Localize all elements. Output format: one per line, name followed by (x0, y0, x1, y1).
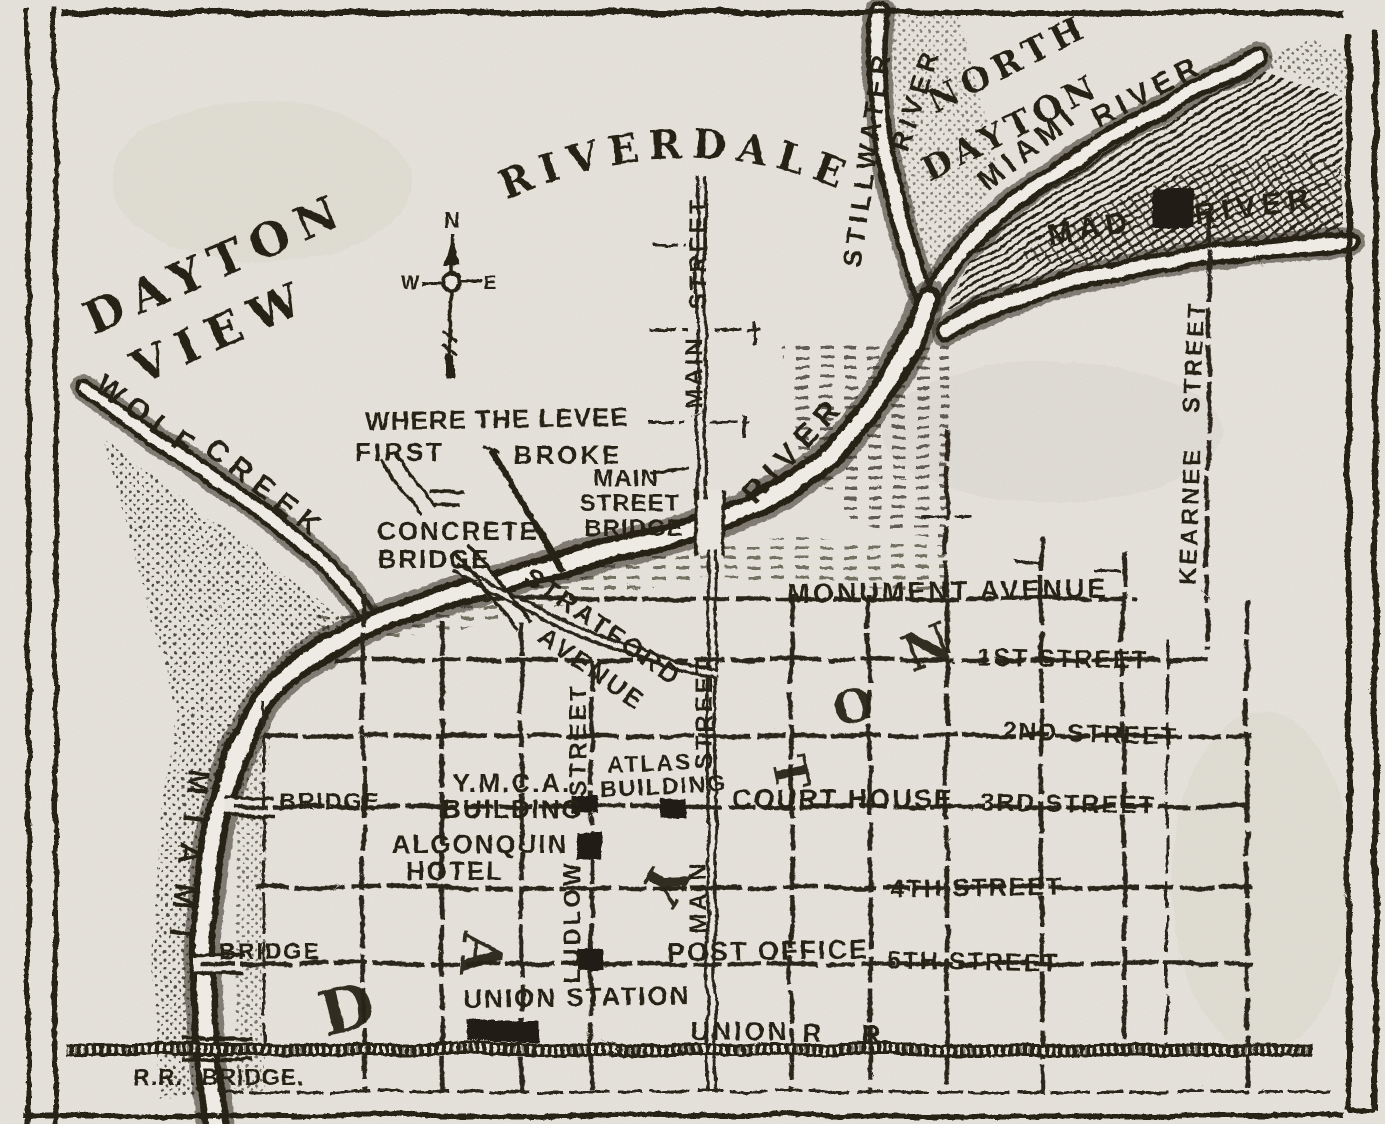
street-main-n-2: MAIN (681, 335, 708, 408)
note-concrete-1: CONCRETE (377, 516, 539, 546)
compass-west-label: W (401, 273, 419, 294)
compass-north-label: N (444, 208, 460, 233)
dayton-flood-map-svg: N W E DAYTONVIEWRIVERDALENORTHDAYTONSTIL… (0, 0, 1385, 1124)
street-kearnee-2: KEARNEE (1175, 446, 1207, 585)
note-main-bridge-2: STREET (580, 490, 681, 517)
street-3rd: 3RD STREET (980, 788, 1156, 819)
note-bridge-5th: BRIDGE (219, 938, 320, 964)
street-main-n-1: STREET (685, 197, 712, 310)
compass-east-label: E (484, 273, 497, 294)
newspaper-map-page: N W E DAYTONVIEWRIVERDALENORTHDAYTONSTIL… (0, 0, 1385, 1124)
street-union-rr-2: R (803, 1018, 822, 1048)
place-algonquin-1: ALGONQUIN (392, 829, 569, 859)
note-bridge-3rd: BRIDGE (279, 788, 380, 814)
note-levee-1: WHERE THE LEVEE (365, 402, 629, 437)
algonquin-hotel-mark (574, 830, 600, 857)
street-4th: 4TH STREET (890, 872, 1063, 903)
union-station-mark (467, 1020, 537, 1041)
street-monument: MONUMENT AVENUE (787, 573, 1108, 609)
smudge-3 (1170, 710, 1350, 1050)
street-union-rr-1: UNION (691, 1016, 790, 1046)
street-union-rr-3: R (862, 1019, 881, 1049)
note-main-bridge-1: MAIN (593, 465, 658, 492)
place-court-house: COURT HOUSE (732, 784, 954, 814)
note-levee-2: FIRST (355, 437, 445, 467)
note-concrete-2: BRIDGE (377, 544, 490, 574)
compass-hub (442, 273, 458, 289)
place-ymca-2: BUILDING (442, 794, 584, 824)
street-ludlow-2: LUDLOW (559, 860, 586, 983)
street-1st: 1ST STREET (977, 644, 1149, 675)
atlas-building-mark (658, 797, 683, 816)
place-union-station: UNION STATION (463, 980, 691, 1014)
street-5th: 5TH STREET (887, 946, 1060, 977)
place-algonquin-2: HOTEL (406, 856, 504, 886)
note-rr-bridge-2: BRIDGE. (202, 1064, 305, 1090)
note-rr-bridge-1: R.R. (133, 1064, 183, 1090)
note-main-bridge-3: BRIDGE (584, 515, 683, 542)
big-letter-a: A (446, 928, 516, 981)
north-dayton-building-mark (1150, 188, 1192, 226)
street-main-s-1: STREET (691, 657, 718, 770)
place-post-office: POST OFFICE (667, 934, 870, 968)
smudge-1 (880, 360, 1220, 500)
